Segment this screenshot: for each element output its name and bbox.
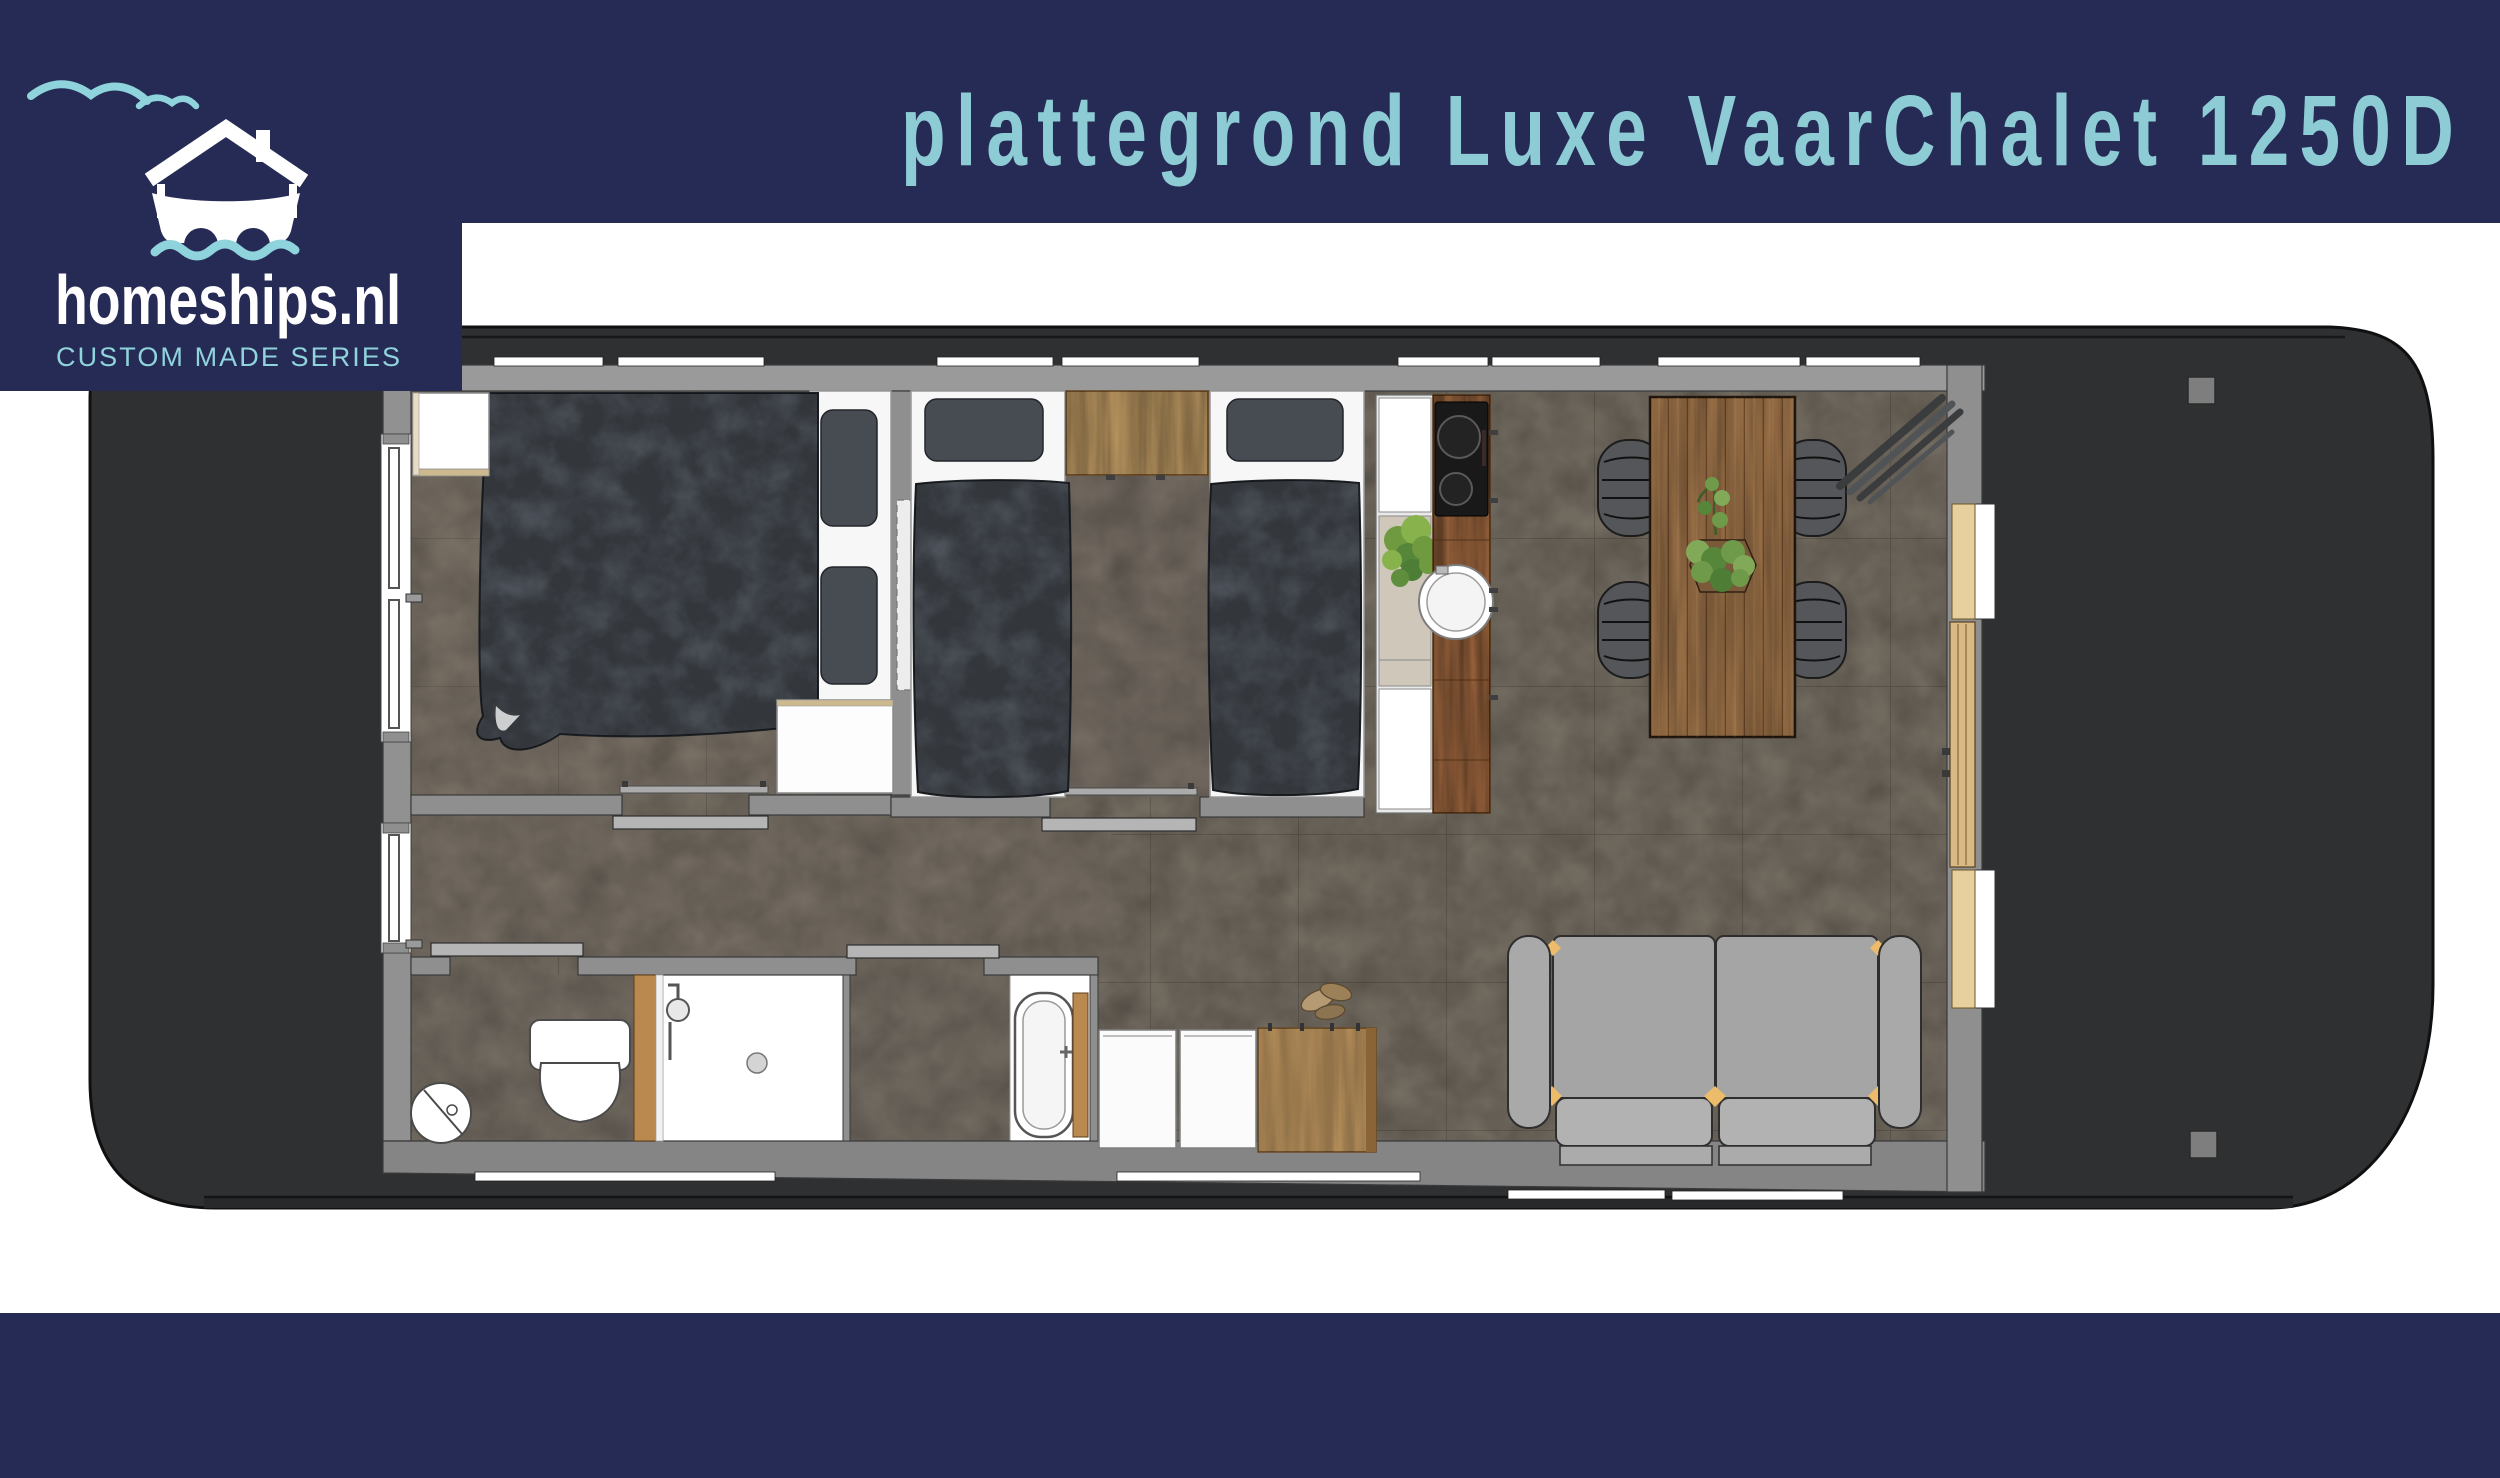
svg-text:CUSTOM MADE SERIES: CUSTOM MADE SERIES <box>56 342 400 372</box>
svg-text:plattegrond Luxe VaarChalet 12: plattegrond Luxe VaarChalet 1250D <box>901 76 2464 188</box>
svg-text:homeships.nl: homeships.nl <box>55 261 401 339</box>
